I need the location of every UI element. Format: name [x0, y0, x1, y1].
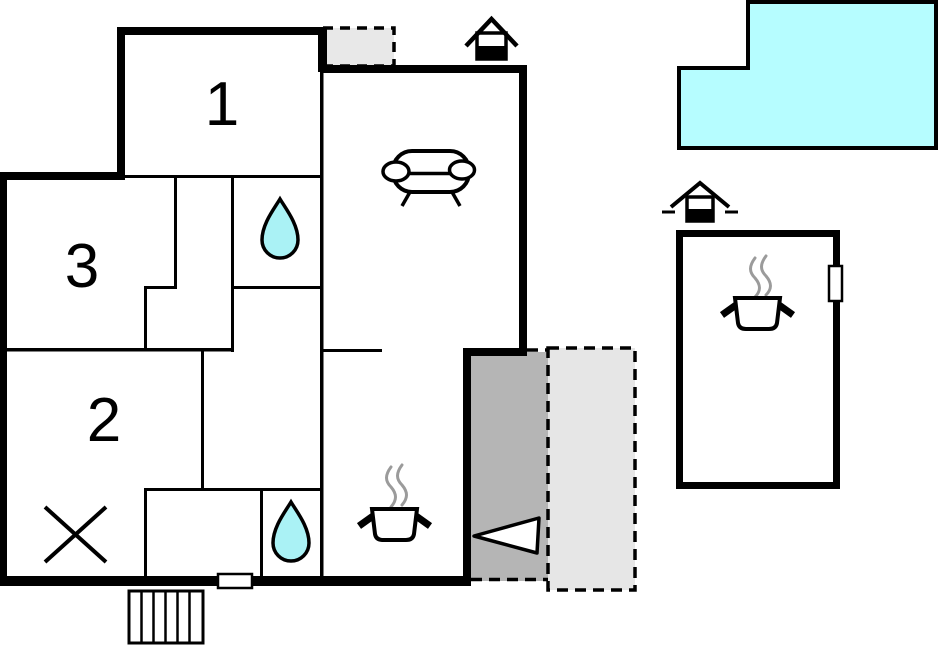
- steam-line: [398, 465, 407, 505]
- upper-terrace-area: [323, 28, 394, 66]
- wall: [231, 175, 234, 352]
- wall: [320, 72, 324, 578]
- annex: [662, 183, 842, 489]
- water-drop-icon: [262, 199, 298, 258]
- cross-icon: [45, 507, 106, 562]
- wall: [144, 488, 147, 578]
- wall: [260, 491, 263, 578]
- pot-handle-right: [416, 516, 430, 526]
- room-3-label: 3: [65, 232, 99, 301]
- wall: [174, 175, 177, 289]
- room-1-label: 1: [205, 70, 239, 139]
- fireplace-icon: [466, 19, 517, 59]
- wall: [117, 27, 327, 35]
- steam-line: [387, 467, 396, 507]
- wall: [0, 348, 234, 352]
- pool-area: [679, 2, 936, 148]
- wall: [519, 65, 527, 356]
- sofa-icon: [383, 151, 475, 206]
- floor-plan-canvas: 1 3 2: [0, 0, 947, 652]
- wall: [201, 351, 204, 491]
- wall: [320, 349, 382, 352]
- wall: [144, 286, 147, 351]
- fireplace-firebox: [687, 209, 713, 221]
- room-2-label: 2: [87, 386, 121, 455]
- sofa-leg-left: [402, 192, 410, 206]
- wall: [0, 172, 123, 180]
- pot-body: [735, 298, 780, 329]
- wall: [117, 27, 125, 180]
- wall: [0, 172, 7, 585]
- sofa-leg-right: [452, 192, 460, 206]
- steam: [387, 465, 407, 507]
- cooking-pot-icon: [359, 465, 430, 540]
- wall: [123, 175, 320, 178]
- sofa-armrest-right: [450, 161, 475, 179]
- upper-terrace: [323, 28, 394, 66]
- main-house-walls: [0, 27, 527, 586]
- terrace-light: [548, 348, 635, 590]
- wall: [320, 65, 527, 73]
- fireplace-icon: [662, 183, 738, 221]
- water-drop-icon: [273, 502, 309, 561]
- fireplace-firebox: [477, 46, 506, 59]
- wall: [144, 286, 177, 289]
- annex-interior: [683, 237, 833, 482]
- pot-handle-left: [359, 516, 373, 526]
- stairs-icon: [129, 591, 203, 643]
- sofa-armrest-left: [383, 162, 409, 181]
- window-marker: [218, 574, 252, 588]
- pot-body: [372, 509, 417, 540]
- wall: [463, 348, 471, 585]
- wall: [234, 286, 320, 289]
- wall: [463, 348, 527, 356]
- door-marker: [829, 266, 842, 301]
- wall: [144, 488, 323, 491]
- terrace-light-area: [548, 348, 635, 590]
- floor-plan-page: 1 3 2: [0, 0, 947, 652]
